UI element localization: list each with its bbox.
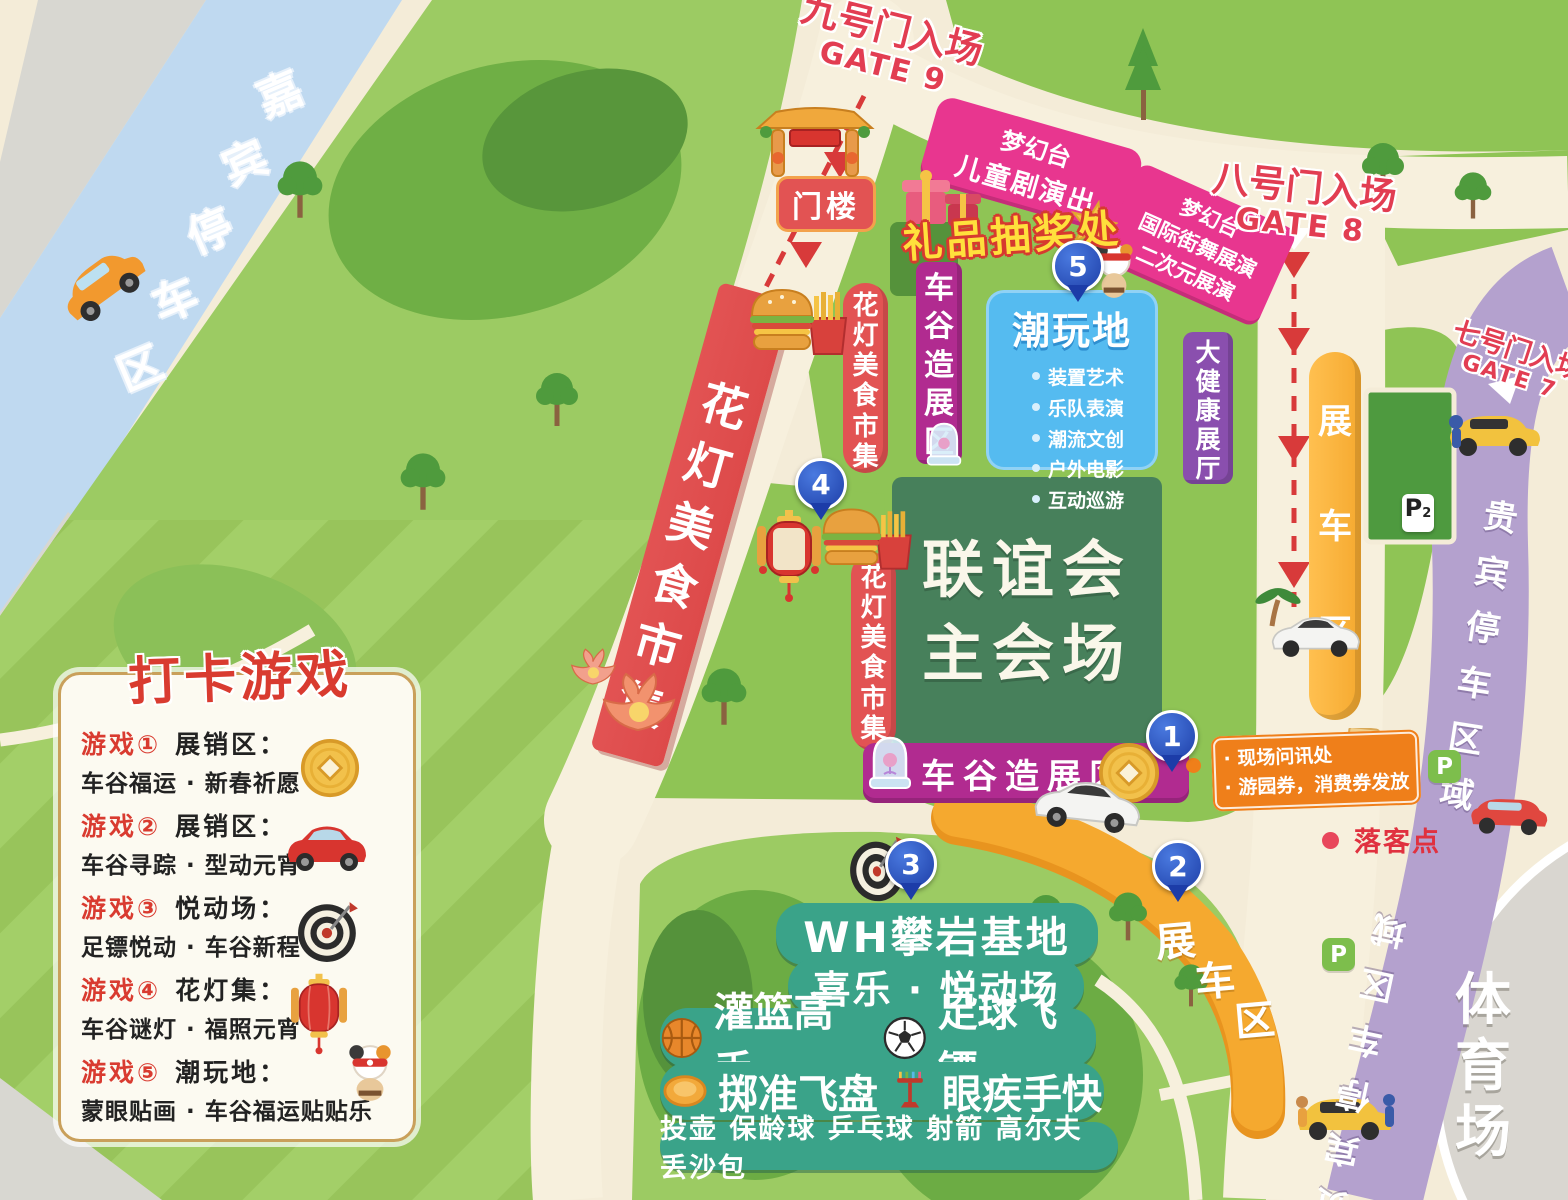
info-note: 现场问讯处 游园券，消费券发放 (1211, 729, 1421, 811)
gate-tower-label: 门楼 (776, 176, 876, 232)
map-pin-5: 5 (1052, 240, 1104, 292)
event-park-map: 嘉宾停车区 贵宾停车区域 贵宾停车区域 体育场 九号门入场 GATE 9 八号门… (0, 0, 1568, 1200)
map-pin-4: 4 (795, 458, 847, 510)
parking-p-sign-2: P (1322, 938, 1355, 971)
drop-off-dot (1322, 832, 1339, 849)
map-pin-1: 1 (1146, 710, 1198, 762)
red-car-icon (282, 820, 372, 872)
activity-list-pill: 投壶 保龄球 乒乓球 射箭 高尔夫 丢沙包 (660, 1122, 1118, 1170)
lantern-market-strip-2: 花灯美食市集 (851, 553, 896, 751)
activity-row-1: 灌篮高手 足球飞镖 (660, 1008, 1096, 1068)
gold-coin-icon (300, 738, 360, 798)
parking-p-sign-1: P (1428, 750, 1461, 783)
gate-arch-icon (748, 102, 882, 180)
legend-title: 打卡游戏 (127, 632, 353, 715)
burger-fries-icon-1 (748, 280, 856, 366)
trendy-item-list: 装置艺术 乐队表演 潮流文创 户外电影 互动巡游 (1032, 363, 1158, 517)
cat-mascot-icon-legend (342, 1042, 398, 1104)
basketball-icon (660, 1016, 704, 1060)
legend-item-4: 游戏④花灯集： 车谷谜灯 · 福照元宵 (81, 971, 399, 1044)
car-show-strip: 展车区 (1309, 352, 1361, 720)
trendy-play-panel: 潮玩地 装置艺术 乐队表演 潮流文创 户外电影 互动巡游 (986, 290, 1158, 470)
drop-off-label: 落客点 (1354, 820, 1441, 859)
white-car-strip (1266, 612, 1364, 662)
parking-p2-sign: P2 (1402, 494, 1434, 532)
health-hall-strip: 大健康展厅 (1183, 332, 1233, 484)
main-venue: 联谊会 主会场 (892, 477, 1162, 747)
lotus-icon (568, 648, 678, 734)
map-pin-2: 2 (1152, 840, 1204, 892)
bell-jar-icon-strip (926, 418, 962, 472)
burger-fries-icon-2 (820, 500, 920, 580)
note-connector-dot (1186, 758, 1201, 773)
soccer-ball-icon (882, 1015, 928, 1061)
bell-jar-icon-bar (868, 730, 912, 798)
lantern-icon-legend (288, 972, 350, 1056)
dartboard-icon (296, 898, 362, 964)
stadium-label: 体育场 (1452, 968, 1514, 1166)
map-pin-3: 3 (885, 838, 937, 890)
climbing-base-pill: WH攀岩基地 (776, 903, 1098, 965)
